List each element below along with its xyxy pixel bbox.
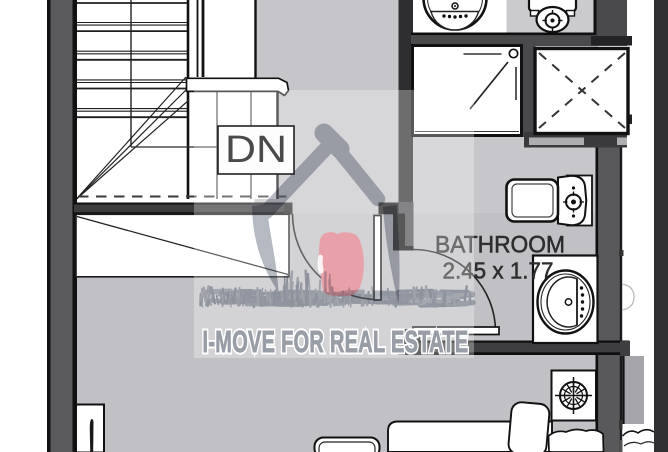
svg-text:I-MOVE FOR REAL ESTATE: I-MOVE FOR REAL ESTATE xyxy=(203,324,469,359)
svg-text:DN: DN xyxy=(225,129,287,171)
